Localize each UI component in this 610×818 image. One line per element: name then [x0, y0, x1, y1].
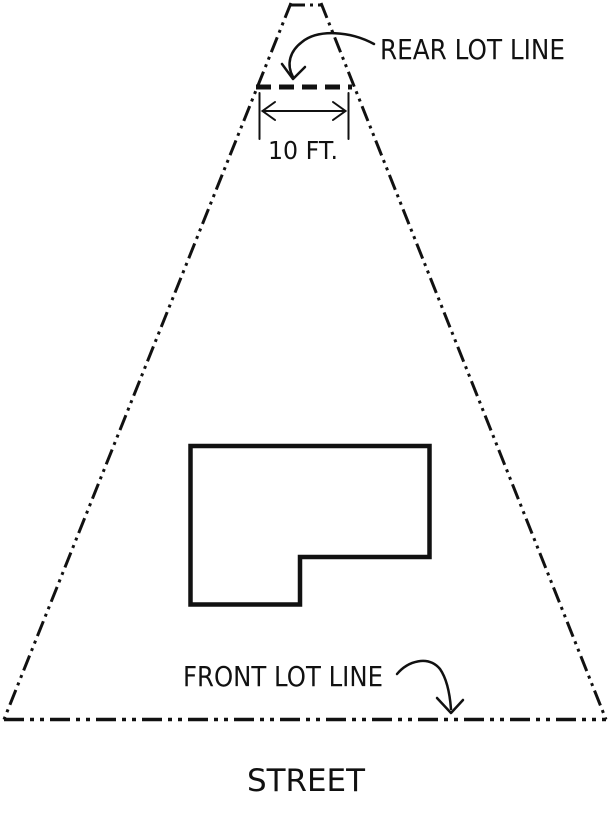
- building-footprint: [191, 446, 430, 605]
- lot-line-right-side: [321, 3, 606, 720]
- front-lot-line-callout: FRONT LOT LINE: [183, 660, 463, 713]
- lot-line-left-side: [4, 3, 291, 720]
- front-leader-curve: [397, 661, 451, 709]
- street-label: STREET: [247, 763, 366, 799]
- site-plan-diagram: 10 FT. REAR LOT LINE FRONT LOT LINE STRE…: [0, 0, 610, 818]
- rear-lot-line-label: REAR LOT LINE: [380, 33, 565, 66]
- dimension-label: 10 FT.: [268, 136, 338, 165]
- site-plan-svg: 10 FT. REAR LOT LINE FRONT LOT LINE STRE…: [0, 0, 610, 818]
- dimension-10ft: 10 FT.: [260, 93, 349, 165]
- front-lot-line-label: FRONT LOT LINE: [183, 660, 383, 693]
- rear-leader-arrowhead-icon: [282, 64, 305, 79]
- rear-lot-line-callout: REAR LOT LINE: [282, 33, 565, 79]
